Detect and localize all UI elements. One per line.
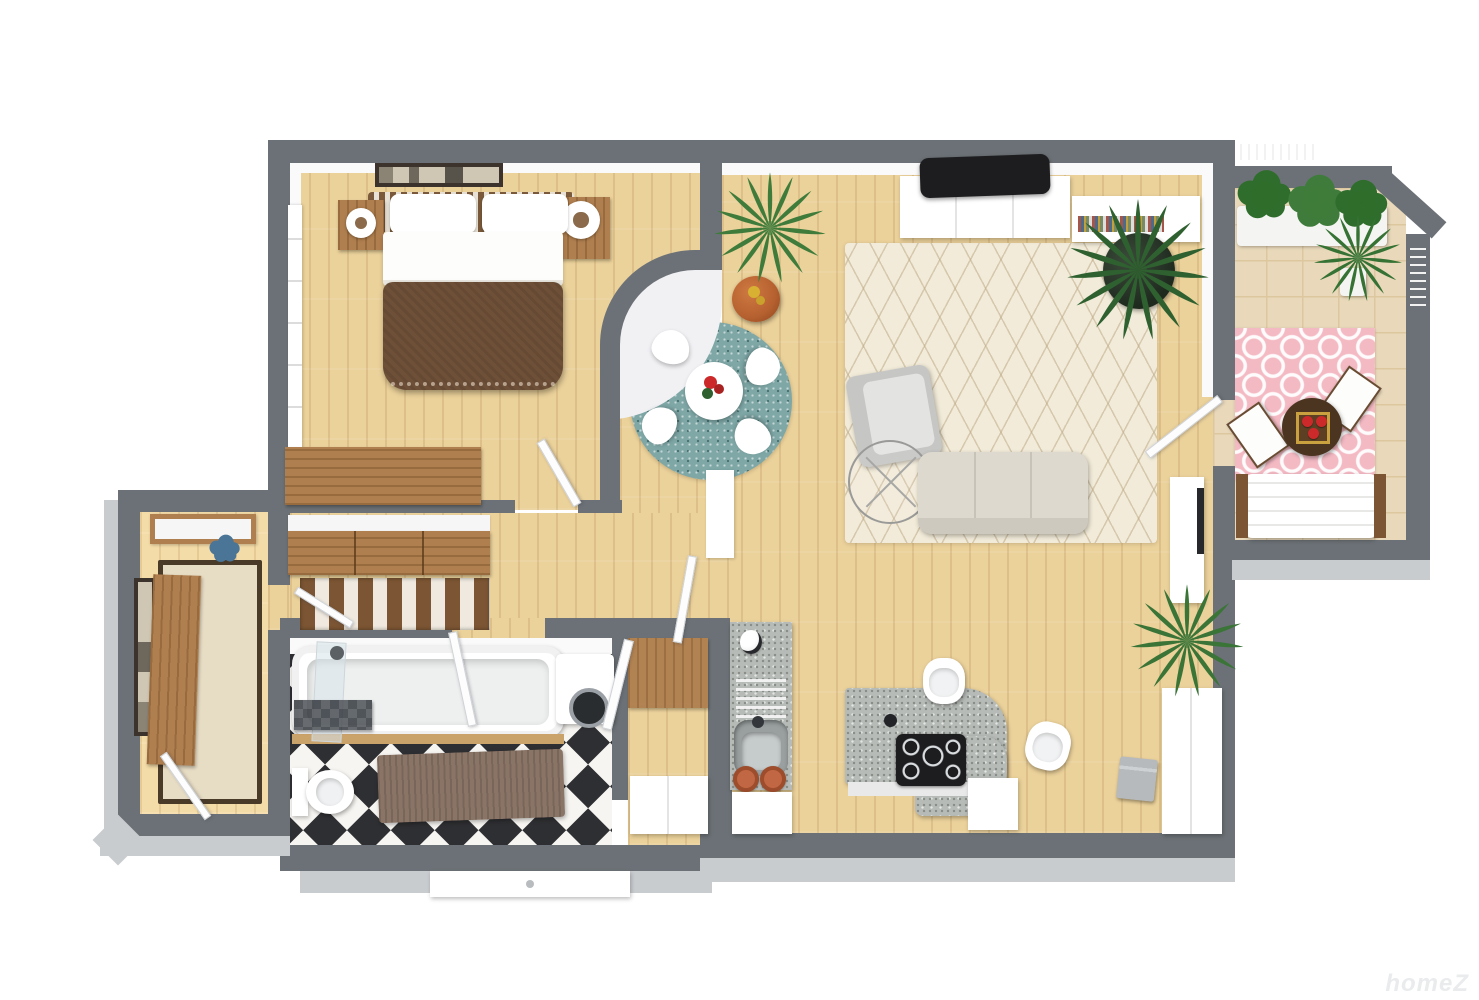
counter-small-plant [740,630,762,654]
bar-stool-1 [923,658,965,704]
balcony-bench [1246,474,1376,538]
kettle-on-island [884,714,897,727]
bedroom-dresser [285,447,481,505]
wall-entry-right-upper [268,512,290,585]
bedroom-wall-picture [375,163,503,187]
red-cup-3 [1308,428,1319,439]
wall-top-main [268,140,1235,164]
tall-white-cabinet [1162,688,1222,834]
bed-pillow-left [390,194,476,234]
bath-dark-counter [294,700,372,730]
wall-bottom-main [700,833,1235,858]
wall-entry-top [118,490,290,512]
wall-closet-kitchen [708,638,732,845]
sink-drainboard [736,676,786,718]
watermark: homeZ [1385,970,1469,998]
table-flowers-red-2 [714,384,724,394]
bed-pillow-right [482,194,568,234]
induction-cooktop [896,734,966,786]
living-palm-bottom [1128,582,1246,700]
bed-sheet-fold [383,232,563,286]
window-hatch-top-wall [1240,144,1318,160]
entry-blue-plant [204,530,246,572]
floor-plan-3d: homeZ [0,0,1479,1000]
shadow-balcony-bottom [1232,560,1430,580]
balcony-palm [1312,212,1404,304]
hall-wall-stub [706,470,734,558]
fruit-on-side-table-2 [756,296,765,305]
nightstand-lamp-left [346,208,376,238]
wall-entry-right-lower [268,630,290,836]
window-hatch-balcony-wall [1410,248,1426,306]
island-end-cabinet [968,778,1018,830]
closet-counter-top [628,638,708,708]
burner-right [760,766,786,792]
sideboard-dark-panel [1197,488,1204,554]
bench-arm-right [1374,474,1386,538]
shadow-entry-left [104,500,118,836]
staircase-down [300,578,490,630]
burner-left [733,766,759,792]
tub-faucet [330,646,344,660]
kitchen-base-cabinet [732,792,792,834]
entry-console-table [147,574,202,766]
hall-wardrobe [288,531,490,575]
table-flowers-green [702,388,713,399]
wall-bath-top-right [545,618,730,638]
bath-mat [377,749,565,823]
wall-bath-bottom [280,845,712,871]
bedroom-wall-shelf [288,205,302,450]
wall-balcony-bottom [1232,540,1430,560]
step-door-handle [526,880,534,888]
red-cup-1 [1302,416,1313,427]
living-palm-top [1064,196,1212,344]
wardrobe-top-band [288,515,490,531]
toilet [306,770,354,814]
shadow-bottom-main [700,858,1235,882]
bed-duvet [383,282,563,390]
bench-arm-left [1236,474,1248,538]
sink-faucet [752,716,764,728]
television [919,154,1050,199]
living-sofa [918,452,1088,534]
waste-bin [1116,756,1158,802]
wall-below-curve [600,400,620,513]
dining-palm-plant [712,170,828,286]
red-cup-2 [1316,416,1327,427]
closet-base-cabinet [630,776,708,834]
